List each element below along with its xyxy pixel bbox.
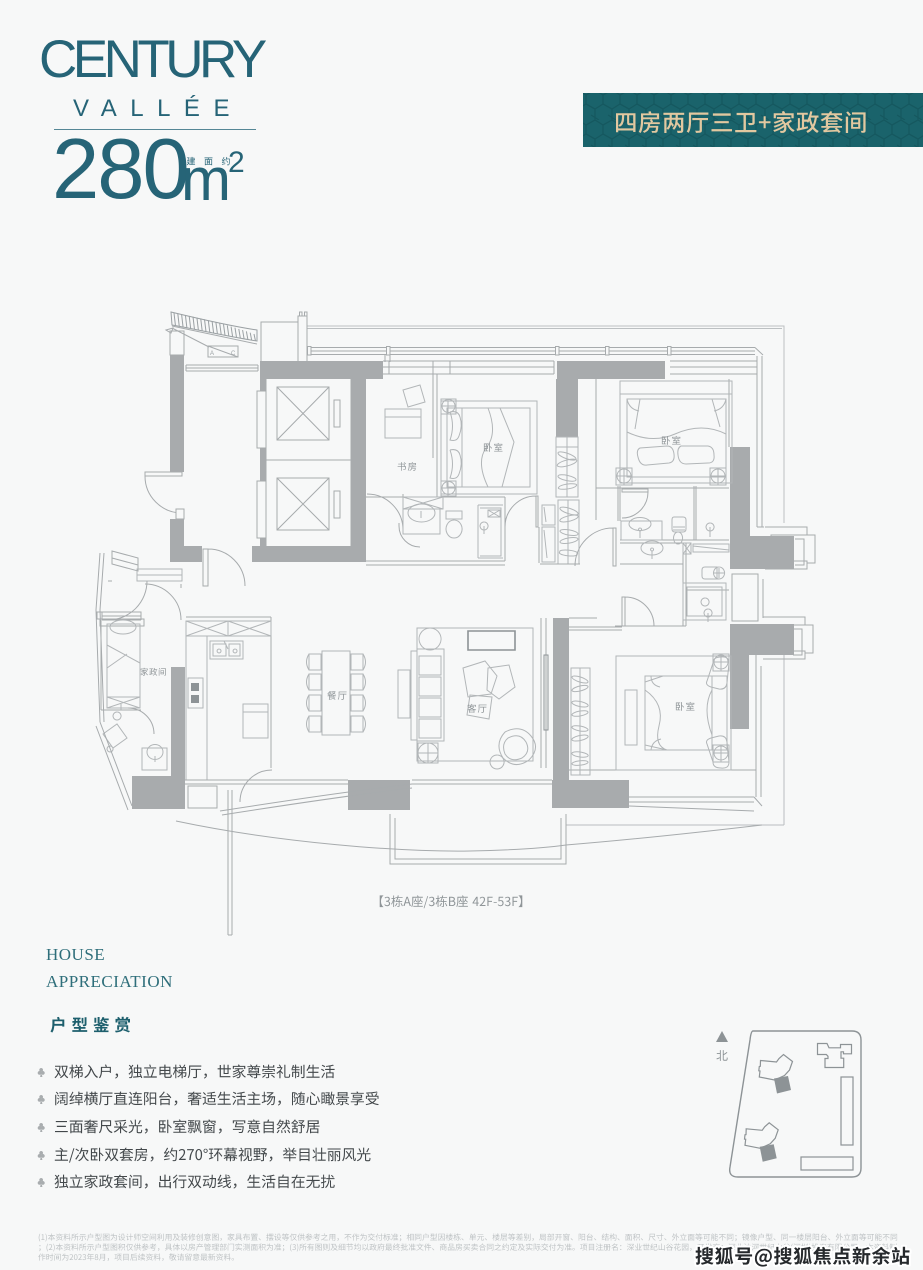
svg-text:A: A xyxy=(210,351,214,357)
svg-text:C: C xyxy=(231,351,236,357)
